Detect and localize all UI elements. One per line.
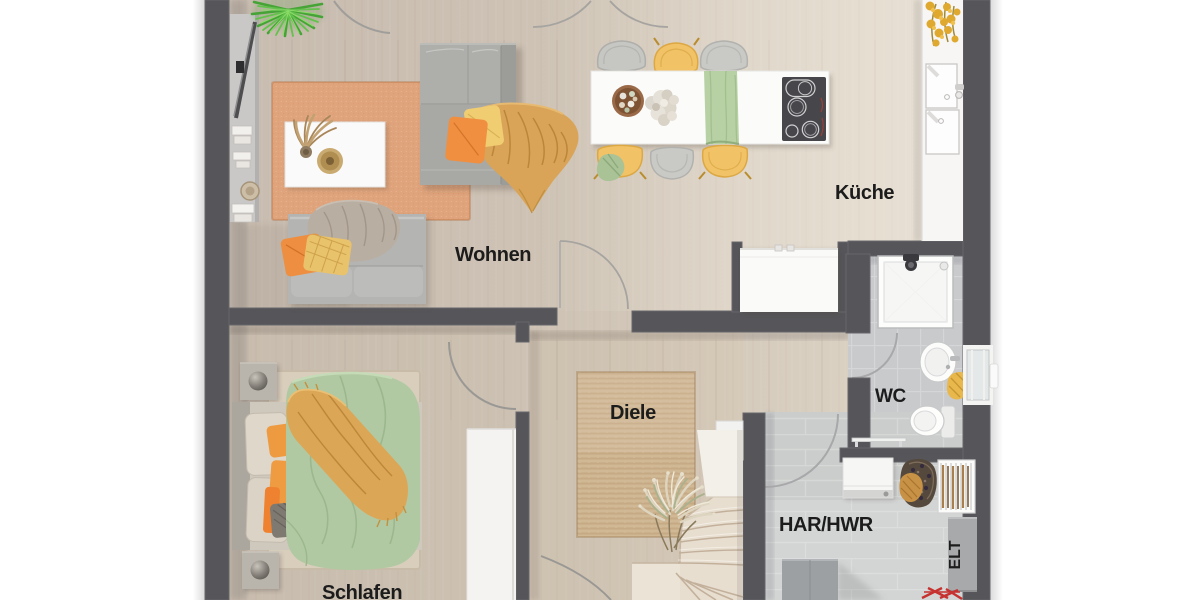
svg-text:HAR/HWR: HAR/HWR: [779, 514, 874, 536]
svg-text:Schlafen: Schlafen: [322, 582, 402, 600]
svg-text:ELT: ELT: [947, 540, 964, 569]
svg-text:Wohnen: Wohnen: [455, 244, 531, 266]
svg-text:WC: WC: [875, 386, 907, 407]
svg-text:Küche: Küche: [835, 182, 894, 204]
svg-text:Diele: Diele: [610, 402, 656, 424]
